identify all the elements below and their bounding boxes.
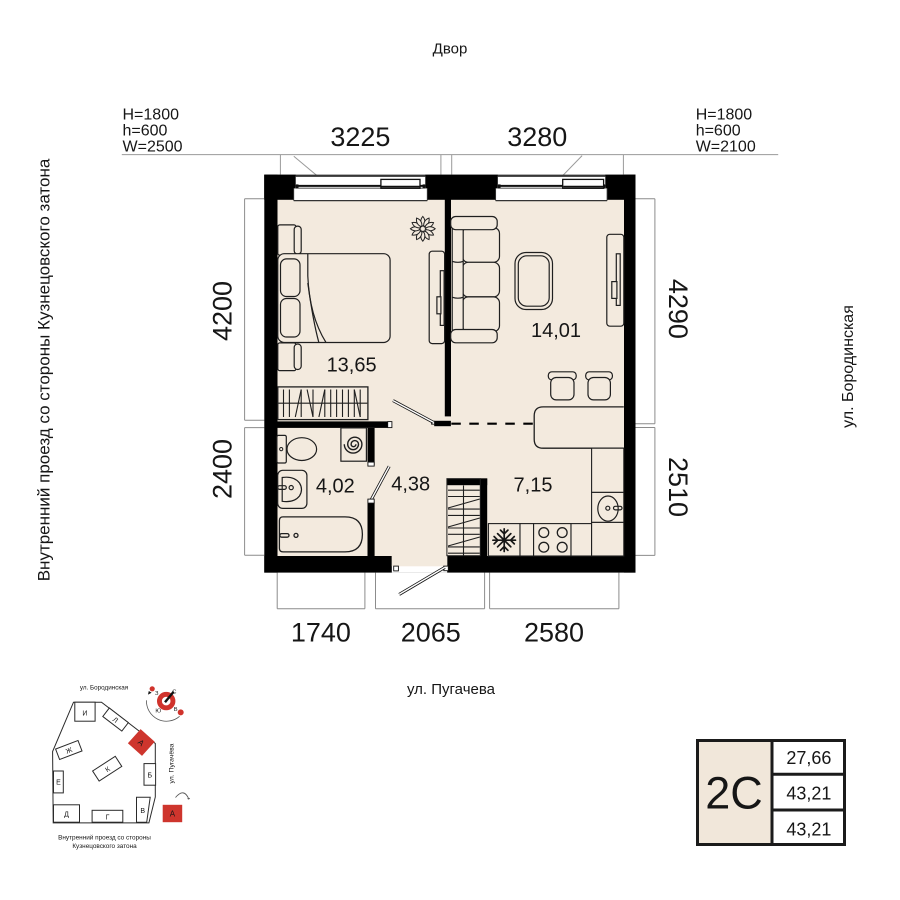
svg-text:ул. Пугачёва: ул. Пугачёва [168,743,175,783]
svg-text:h=600: h=600 [696,123,741,140]
svg-text:ул. Бородинская: ул. Бородинская [840,305,857,428]
svg-text:ул. Пугачева: ул. Пугачева [407,681,496,698]
svg-text:Внутренний проезд со стороны К: Внутренний проезд со стороны Кузнецовско… [35,158,54,581]
svg-text:3280: 3280 [507,122,567,152]
svg-text:А: А [170,810,176,819]
svg-text:2065: 2065 [401,618,461,648]
svg-text:7,15: 7,15 [514,475,553,497]
svg-text:3225: 3225 [330,122,390,152]
svg-text:27,66: 27,66 [786,748,831,768]
svg-text:З: З [155,691,159,697]
svg-text:Д: Д [64,812,69,819]
svg-text:W=2500: W=2500 [123,139,183,156]
svg-text:Г: Г [106,814,110,821]
svg-text:H=1800: H=1800 [696,106,753,123]
svg-text:1740: 1740 [291,618,351,648]
svg-text:2580: 2580 [524,618,584,648]
svg-text:W=2100: W=2100 [696,139,756,156]
svg-text:2510: 2510 [663,457,693,517]
svg-text:И: И [82,710,87,717]
svg-text:С: С [172,690,176,696]
svg-text:43,21: 43,21 [786,783,831,803]
svg-text:Кузнецовского затона: Кузнецовского затона [72,843,137,850]
svg-text:Двор: Двор [433,41,468,58]
svg-text:В: В [174,707,178,713]
svg-text:4200: 4200 [208,281,238,341]
svg-text:Внутренний проезд со стороны: Внутренний проезд со стороны [58,833,151,841]
svg-text:2400: 2400 [208,439,238,499]
svg-text:H=1800: H=1800 [123,106,180,123]
svg-text:h=600: h=600 [123,123,168,140]
svg-text:4,38: 4,38 [391,474,430,496]
svg-text:ул. Бородинская: ул. Бородинская [80,685,128,692]
svg-text:Ю: Ю [155,708,161,714]
svg-text:14,01: 14,01 [531,320,581,342]
svg-text:Б: Б [148,772,153,779]
svg-text:4,02: 4,02 [316,476,355,498]
svg-text:4290: 4290 [663,279,693,339]
svg-text:Е: Е [56,780,61,787]
svg-text:13,65: 13,65 [327,355,377,377]
svg-text:43,21: 43,21 [786,819,831,839]
svg-text:В: В [140,808,145,815]
svg-text:2C: 2C [705,768,763,819]
